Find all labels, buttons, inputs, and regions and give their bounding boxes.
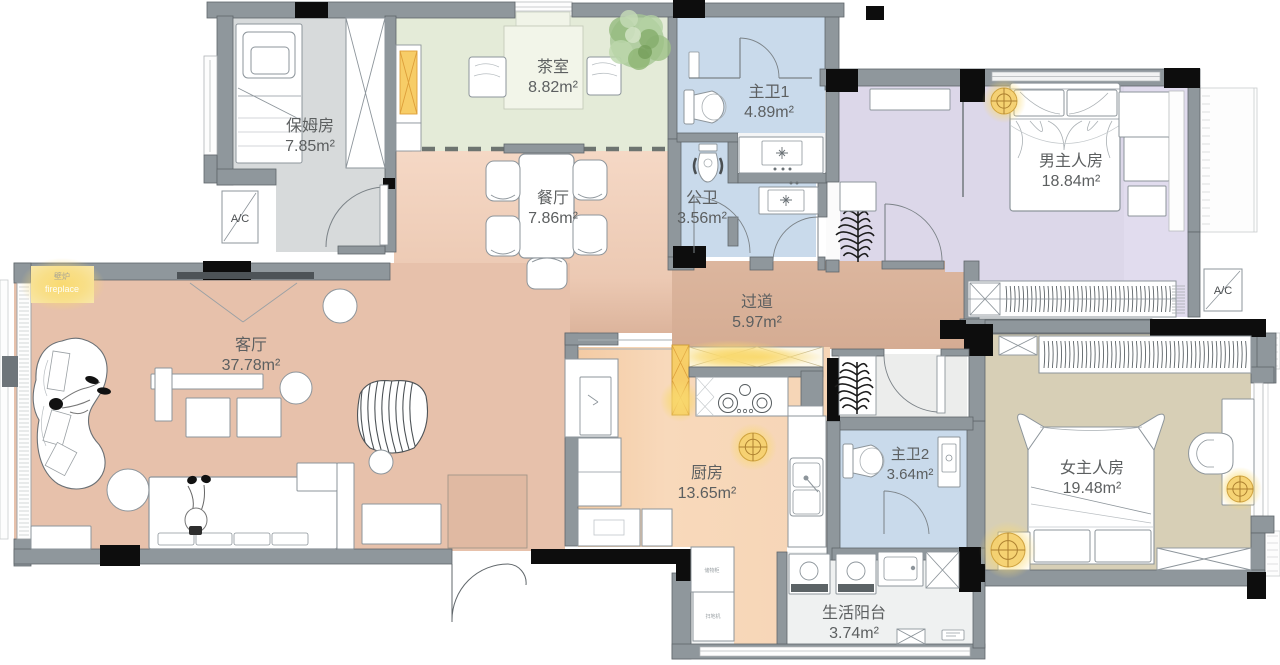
svg-text:茶室: 茶室 (537, 58, 569, 76)
svg-text:8.82m²: 8.82m² (528, 79, 578, 96)
svg-text:13.65m²: 13.65m² (678, 485, 737, 502)
svg-text:厨房: 厨房 (691, 464, 723, 482)
svg-text:3.56m²: 3.56m² (677, 210, 727, 227)
svg-text:壁炉: 壁炉 (54, 271, 70, 281)
svg-text:女主人房: 女主人房 (1060, 458, 1124, 477)
svg-text:过道: 过道 (741, 293, 773, 311)
svg-text:A/C: A/C (1214, 285, 1232, 297)
svg-text:生活阳台: 生活阳台 (822, 604, 886, 622)
svg-text:A/C: A/C (231, 213, 249, 225)
svg-text:18.84m²: 18.84m² (1042, 173, 1101, 190)
svg-text:3.64m²: 3.64m² (887, 466, 934, 483)
svg-text:7.85m²: 7.85m² (285, 138, 335, 155)
svg-text:19.48m²: 19.48m² (1063, 480, 1122, 497)
svg-text:4.89m²: 4.89m² (744, 104, 794, 121)
svg-text:公卫: 公卫 (686, 190, 718, 207)
svg-text:保姆房: 保姆房 (286, 117, 334, 135)
svg-text:主卫1: 主卫1 (749, 83, 790, 101)
svg-text:主卫2: 主卫2 (891, 446, 929, 463)
svg-text:5.97m²: 5.97m² (732, 314, 782, 331)
svg-text:储物柜: 储物柜 (704, 567, 719, 574)
svg-text:客厅: 客厅 (235, 336, 267, 354)
svg-text:37.78m²: 37.78m² (222, 357, 281, 374)
svg-text:7.86m²: 7.86m² (528, 210, 578, 227)
svg-text:扫地机: 扫地机 (705, 613, 720, 620)
svg-text:3.74m²: 3.74m² (829, 625, 879, 642)
svg-text:fireplace: fireplace (45, 284, 79, 294)
svg-text:男主人房: 男主人房 (1039, 152, 1103, 170)
svg-text:餐厅: 餐厅 (537, 189, 569, 207)
